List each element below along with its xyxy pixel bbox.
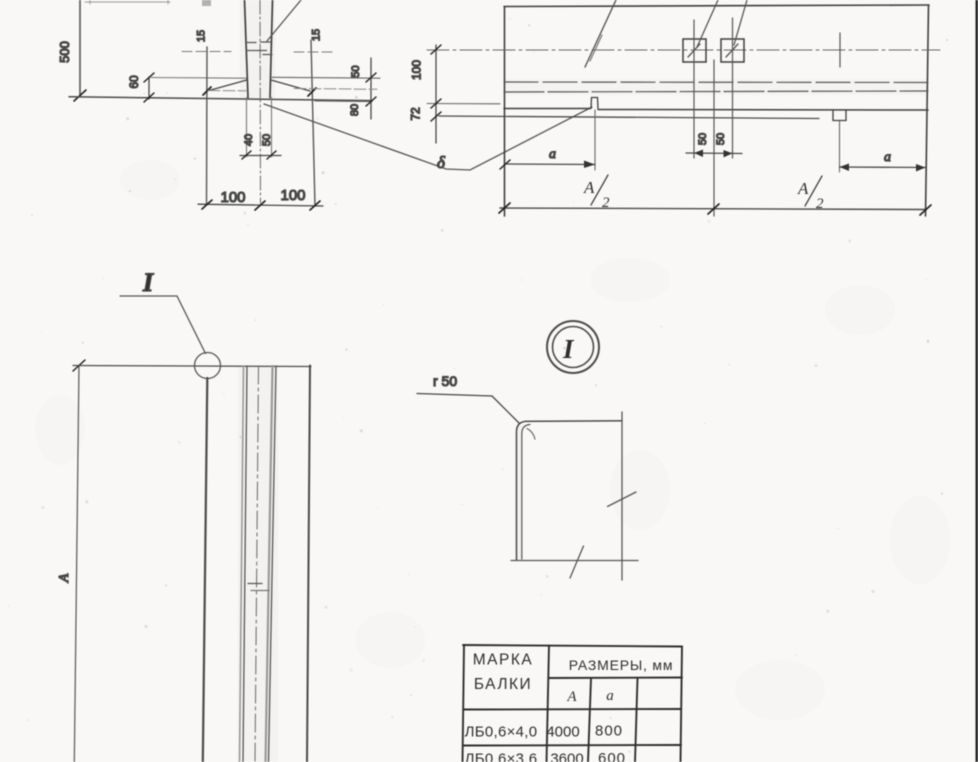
svg-text:100: 100 — [220, 189, 245, 206]
svg-text:800: 800 — [595, 723, 623, 740]
svg-text:60: 60 — [127, 75, 141, 89]
svg-text:4000: 4000 — [546, 724, 579, 741]
svg-text:I: I — [562, 334, 575, 364]
svg-text:50: 50 — [350, 65, 362, 77]
svg-text:15: 15 — [311, 29, 323, 41]
svg-text:БАЛКИ: БАЛКИ — [474, 676, 532, 693]
svg-text:I: I — [142, 268, 154, 297]
svg-text:a: a — [549, 147, 556, 162]
svg-text:15: 15 — [196, 30, 208, 42]
svg-text:A: A — [583, 178, 595, 197]
svg-text:500: 500 — [57, 41, 72, 63]
svg-text:2: 2 — [602, 195, 610, 211]
svg-text:100: 100 — [410, 60, 424, 80]
svg-text:600: 600 — [598, 750, 626, 762]
svg-text:А: А — [566, 689, 577, 705]
svg-text:A: A — [57, 573, 72, 583]
svg-text:50: 50 — [261, 134, 273, 146]
svg-text:2: 2 — [816, 196, 824, 212]
svg-text:a: a — [884, 150, 891, 165]
svg-text:3600: 3600 — [550, 751, 583, 762]
svg-text:ЛБ0,6×4,0: ЛБ0,6×4,0 — [465, 724, 538, 741]
svg-text:МАРКА: МАРКА — [473, 652, 533, 669]
svg-text:а: а — [606, 688, 614, 704]
svg-text:A: A — [797, 179, 809, 198]
svg-text:40: 40 — [243, 134, 255, 146]
svg-text:50: 50 — [715, 133, 727, 145]
svg-text:80: 80 — [349, 104, 361, 116]
svg-text:δ: δ — [437, 153, 446, 172]
svg-text:РАЗМЕРЫ, мм: РАЗМЕРЫ, мм — [569, 657, 674, 673]
svg-text:r 50: r 50 — [433, 373, 457, 389]
svg-text:ЛБ0,6×3,6: ЛБ0,6×3,6 — [465, 751, 538, 762]
svg-text:72: 72 — [409, 107, 423, 121]
svg-text:100: 100 — [280, 187, 305, 204]
svg-text:50: 50 — [697, 133, 709, 145]
